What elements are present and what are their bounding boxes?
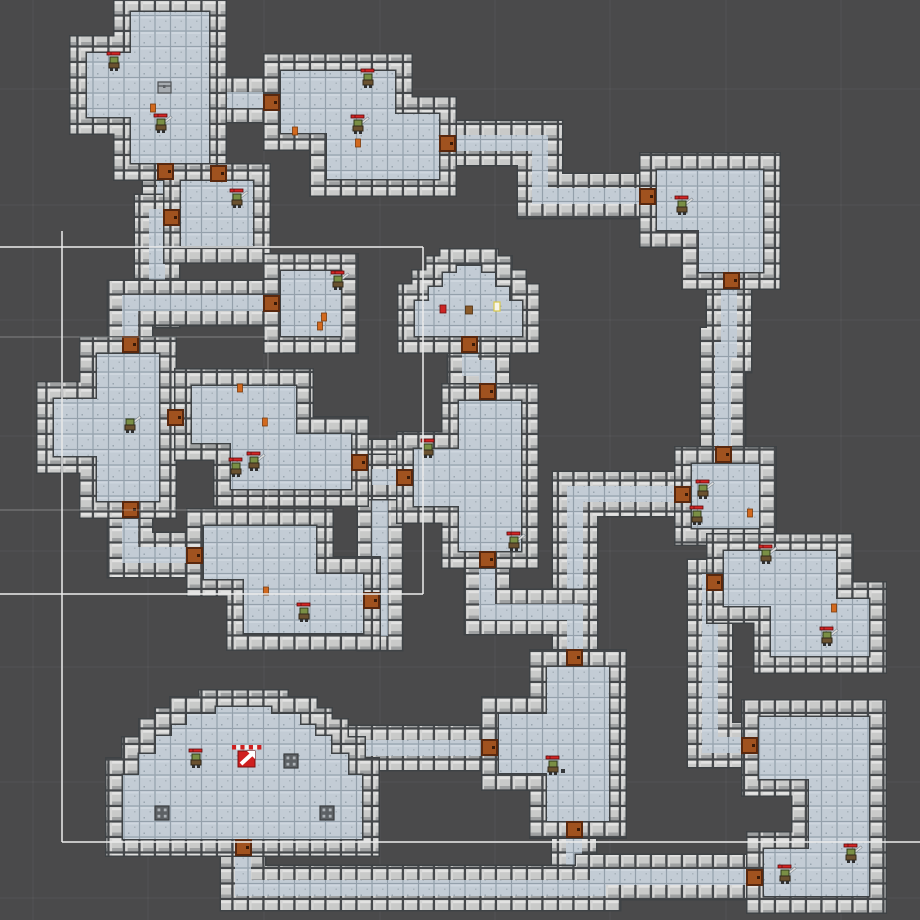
monster-leg [162,130,165,133]
health-bar [844,844,857,847]
monster-head [233,194,241,200]
monster-leg [762,561,765,564]
item-orange-icon [263,418,268,426]
flag-bar-stripe [236,745,240,750]
pillar-dot [164,809,167,812]
health-bar [230,189,243,192]
monster-leg [237,474,240,477]
door-knob [752,744,755,747]
monster-head [232,463,240,469]
item-orange-icon [293,127,298,135]
health-bar [759,545,772,548]
monster-body [249,463,259,468]
monster-leg [233,205,236,208]
monster-head [847,849,855,855]
door-knob [726,453,729,456]
flag-bar-stripe [257,745,261,750]
monster-leg [767,561,770,564]
monster-head [354,120,362,126]
room-floor [272,262,350,345]
monster-leg [238,205,241,208]
monster-body [692,517,702,522]
monster-head [678,201,686,207]
monster-leg [192,765,195,768]
monster-leg [828,643,831,646]
monster-leg [698,522,701,525]
door-knob [221,172,224,175]
door-knob [577,828,580,831]
loot-item[interactable] [322,313,327,321]
door-tile[interactable] [211,166,226,181]
monster-leg [510,548,513,551]
monster-body [191,760,201,765]
monster-head [300,608,308,614]
pillar-tile[interactable] [155,806,169,820]
health-bar [351,115,364,118]
health-bar [778,865,791,868]
door-knob [178,416,181,419]
health-bar [154,114,167,117]
door-tile[interactable] [707,575,722,590]
pillar-block [155,806,169,820]
monster-body [677,207,687,212]
item-brown-icon [466,306,473,314]
monster-leg [699,496,702,499]
door-tile[interactable] [164,210,179,225]
loot-item[interactable] [151,104,156,112]
monster-body [109,63,119,68]
monster-leg [678,212,681,215]
flag-bar-stripe [249,745,253,750]
monster-head [781,870,789,876]
health-bar [696,480,709,483]
door-tile[interactable] [397,470,412,485]
monster-head [334,276,342,282]
small-dark-item[interactable] [561,769,565,773]
door-knob [490,390,493,393]
monster-head [762,550,770,556]
monster-body [353,126,363,131]
door-tile[interactable] [482,740,497,755]
monster-body [509,543,519,548]
monster-head [549,761,557,767]
monster-leg [554,772,557,775]
monster-leg [429,455,432,458]
monster-head [364,74,372,80]
pillar-tile[interactable] [284,754,298,768]
room-floor [406,257,531,345]
item-orange-icon [832,604,837,612]
door-knob [133,343,136,346]
monster-leg [847,860,850,863]
monster-head [157,119,165,125]
scene-canvas[interactable] [0,0,920,920]
flag-bar-stripe [253,745,257,750]
monster-leg [704,496,707,499]
monster-body [125,425,135,430]
pillar-block [320,806,334,820]
health-bar [297,603,310,606]
pillar-dot [164,815,167,818]
monster-body [231,469,241,474]
monster-body [780,876,790,881]
monster-body [822,638,832,643]
room-small-north[interactable] [172,172,262,255]
door-tile[interactable] [364,593,379,608]
pillar-tile[interactable] [320,806,334,820]
door-knob [450,142,453,145]
monster-head [699,485,707,491]
health-bar [675,196,688,199]
door-knob [492,746,495,749]
door-tile[interactable] [724,273,739,288]
monster-body [299,614,309,619]
loot-item[interactable] [293,127,298,135]
door-tile[interactable] [742,738,757,753]
loot-item-brown[interactable] [466,306,473,314]
door-tile[interactable] [567,650,582,665]
pillar-dot [329,809,332,812]
health-bar [361,69,374,72]
door-tile[interactable] [352,455,367,470]
loot-item[interactable] [356,139,361,147]
door-knob [717,581,720,584]
door-knob [490,558,493,561]
monster-head [110,57,118,63]
pillar-block [284,754,298,768]
door-knob [168,170,171,173]
door-tile[interactable] [462,337,477,352]
loot-item[interactable] [832,604,837,612]
door-tile[interactable] [640,189,655,204]
monster-head [823,632,831,638]
monster-leg [852,860,855,863]
door-knob [362,461,365,464]
item-orange-icon [151,104,156,112]
item-orange-icon [322,313,327,321]
door-tile[interactable] [158,164,173,179]
monster-head [126,419,134,425]
door-knob [197,554,200,557]
monster-leg [334,287,337,290]
monster-leg [364,85,367,88]
monster-body [156,125,166,130]
loot-item[interactable] [748,509,753,517]
door-knob [246,846,249,849]
pillar-dot [293,757,296,760]
health-bar [189,749,202,752]
monster-leg [305,619,308,622]
monster-leg [369,85,372,88]
health-bar [107,52,120,55]
item-dark-icon [561,769,565,773]
monster-head [693,511,701,517]
monster-leg [250,468,253,471]
door-knob [407,476,410,479]
loot-item[interactable] [318,322,323,330]
pillar-dot [158,815,161,818]
corridor-floor [723,272,729,462]
monster-leg [197,765,200,768]
pillar-dot [323,815,326,818]
health-bar [331,271,344,274]
door-knob [374,599,377,602]
door-tile[interactable] [123,337,138,352]
item-orange-icon [238,384,243,392]
monster-body [698,491,708,496]
monster-head [192,754,200,760]
door-knob [274,302,277,305]
monster-body [363,80,373,85]
item-orange-icon [356,139,361,147]
pillar-dot [329,815,332,818]
door-tile[interactable] [675,487,690,502]
pillar-dot [323,809,326,812]
door-tile[interactable] [567,822,582,837]
pillar-dot [158,809,161,812]
monster-body [232,200,242,205]
health-bar [690,506,703,509]
item-orange-icon [318,322,323,330]
monster-head [250,457,258,463]
health-bar [247,452,260,455]
door-tile[interactable] [187,548,202,563]
monster-head [510,537,518,543]
monster-leg [823,643,826,646]
loot-item[interactable] [238,384,243,392]
door-tile[interactable] [480,552,495,567]
door-tile[interactable] [264,296,279,311]
monster-leg [157,130,160,133]
monster-body [761,556,771,561]
door-tile[interactable] [440,136,455,151]
health-bar [546,756,559,759]
door-tile[interactable] [716,447,731,462]
monster-head [424,444,432,450]
door-tile[interactable] [168,410,183,425]
door-tile[interactable] [480,384,495,399]
monster-leg [255,468,258,471]
potion-item[interactable] [440,305,446,313]
monster-leg [300,619,303,622]
pillar-dot [287,763,290,766]
scroll-item[interactable] [494,302,500,311]
monster-leg [131,430,134,433]
door-knob [274,101,277,104]
chest-sprite[interactable] [158,82,171,93]
door-knob [472,343,475,346]
monster-leg [126,430,129,433]
pillar-dot [293,763,296,766]
monster-leg [115,68,118,71]
flag-bar-stripe [240,745,244,750]
monster-leg [359,131,362,134]
monster-body [333,282,343,287]
room-dome-small[interactable] [406,257,531,345]
door-knob [685,493,688,496]
health-bar [507,532,520,535]
monster-body [423,450,433,455]
chest-lock [163,85,166,88]
dungeon-scene-view [0,0,920,920]
flag-bar-stripe [245,745,249,750]
item-orange-icon [748,509,753,517]
monster-body [548,767,558,772]
monster-leg [515,548,518,551]
door-tile[interactable] [264,95,279,110]
monster-leg [683,212,686,215]
item-white-icon [494,302,500,311]
monster-leg [549,772,552,775]
monster-leg [424,455,427,458]
door-knob [174,216,177,219]
dungeon-corridor[interactable] [723,272,729,462]
room-dome-large[interactable] [114,698,371,848]
door-knob [650,195,653,198]
room-floor [172,172,262,255]
room-small-mid[interactable] [272,262,350,345]
door-knob [734,279,737,282]
monster-leg [786,881,789,884]
door-knob [757,876,760,879]
item-red-icon [440,305,446,313]
health-bar [229,458,242,461]
monster-leg [110,68,113,71]
monster-leg [693,522,696,525]
monster-leg [781,881,784,884]
monster-body [846,855,856,860]
monster-leg [354,131,357,134]
door-tile[interactable] [747,870,762,885]
health-bar [820,627,833,630]
flag-bar-stripe [232,745,236,750]
pillar-dot [287,757,290,760]
door-knob [577,656,580,659]
monster-leg [339,287,342,290]
monster-leg [232,474,235,477]
loot-item[interactable] [263,418,268,426]
